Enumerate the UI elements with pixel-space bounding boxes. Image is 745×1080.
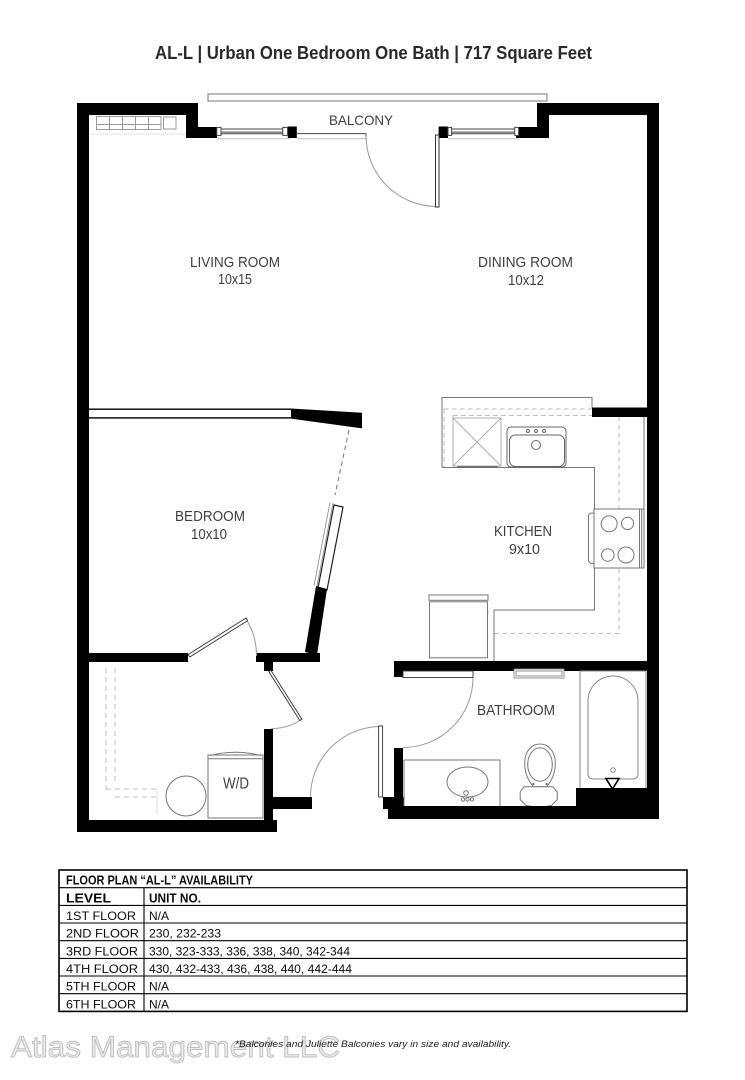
svg-text:1ST FLOOR: 1ST FLOOR (66, 909, 136, 923)
svg-text:N/A: N/A (149, 909, 169, 923)
svg-text:10x12: 10x12 (508, 273, 544, 289)
svg-text:AL-L | Urban One Bedroom One B: AL-L | Urban One Bedroom One Bath | 717 … (155, 43, 592, 63)
svg-text:9x10: 9x10 (509, 542, 540, 558)
svg-text:5TH FLOOR: 5TH FLOOR (66, 980, 136, 994)
svg-text:BATHROOM: BATHROOM (477, 703, 555, 719)
svg-text:2ND FLOOR: 2ND FLOOR (66, 927, 139, 941)
svg-text:4TH FLOOR: 4TH FLOOR (66, 962, 138, 976)
svg-text:*Balconies and Juliette Balcon: *Balconies and Juliette Balconies vary i… (235, 1039, 511, 1050)
svg-text:LEVEL: LEVEL (66, 891, 111, 905)
svg-text:FLOOR PLAN “AL-L” AVAILABILITY: FLOOR PLAN “AL-L” AVAILABILITY (66, 874, 254, 888)
svg-text:N/A: N/A (149, 997, 169, 1011)
svg-text:N/A: N/A (149, 980, 169, 994)
svg-text:KITCHEN: KITCHEN (494, 524, 552, 540)
svg-text:LIVING ROOM: LIVING ROOM (190, 255, 280, 271)
svg-text:BEDROOM: BEDROOM (175, 509, 245, 525)
svg-text:230, 232-233: 230, 232-233 (149, 927, 221, 941)
svg-text:UNIT NO.: UNIT NO. (149, 891, 201, 905)
svg-text:6TH FLOOR: 6TH FLOOR (66, 997, 136, 1011)
svg-text:W/D: W/D (223, 776, 249, 793)
svg-text:DINING ROOM: DINING ROOM (478, 255, 573, 271)
svg-text:330, 323-333, 336, 338, 340, 3: 330, 323-333, 336, 338, 340, 342-344 (149, 944, 350, 958)
svg-text:430, 432-433, 436, 438, 440, 4: 430, 432-433, 436, 438, 440, 442-444 (149, 962, 352, 976)
svg-text:BALCONY: BALCONY (329, 112, 394, 128)
svg-text:10x10: 10x10 (191, 527, 227, 543)
svg-text:10x15: 10x15 (218, 272, 252, 288)
svg-text:3RD FLOOR: 3RD FLOOR (66, 944, 138, 958)
